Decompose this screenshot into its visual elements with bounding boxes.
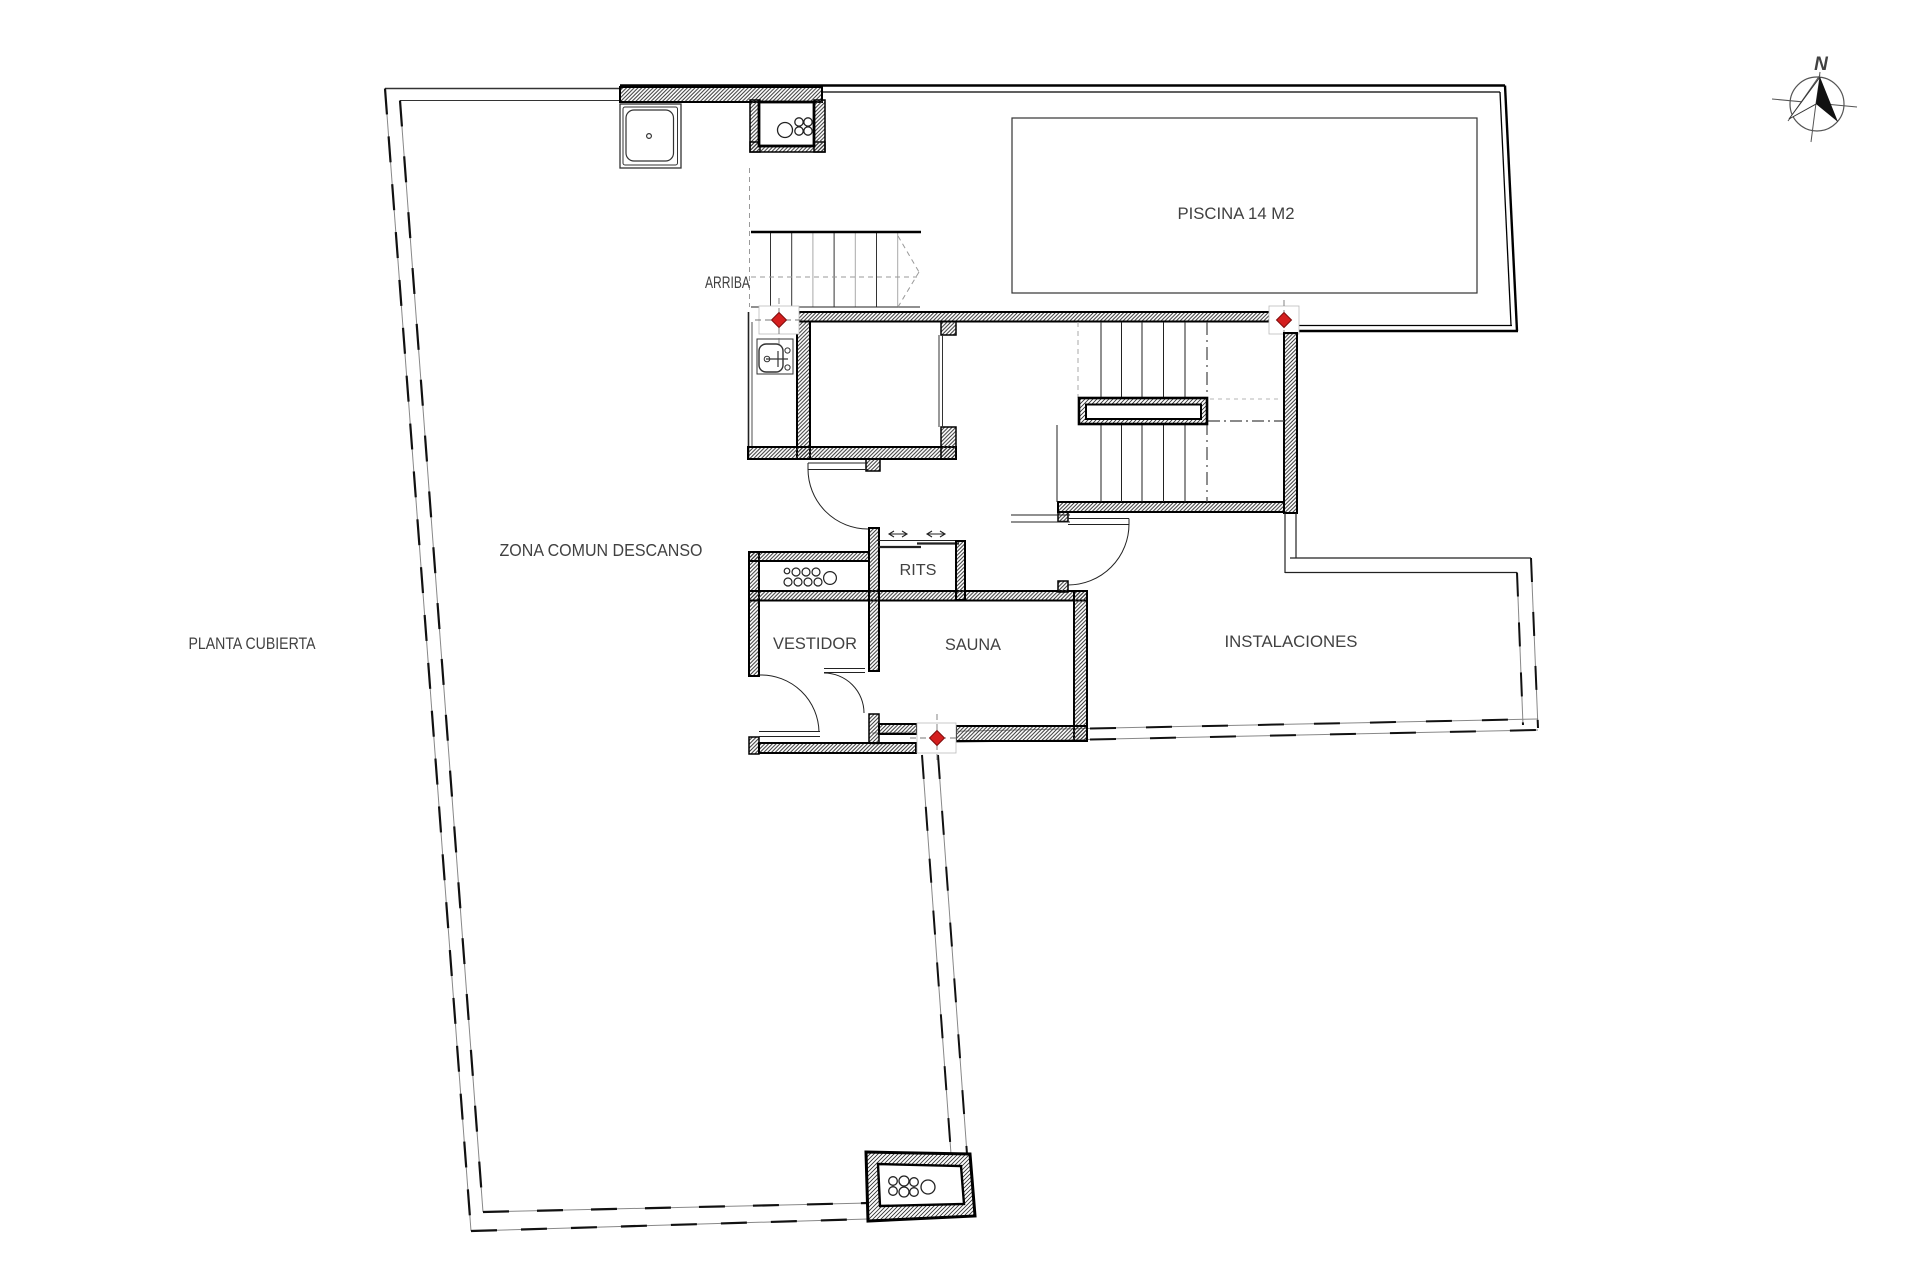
svg-text:N: N (1814, 54, 1829, 75)
svg-text:INSTALACIONES: INSTALACIONES (1225, 632, 1358, 651)
svg-text:SAUNA: SAUNA (945, 635, 1002, 654)
svg-text:VESTIDOR: VESTIDOR (773, 634, 857, 653)
svg-text:PLANTA CUBIERTA: PLANTA CUBIERTA (189, 634, 317, 653)
svg-text:RITS: RITS (900, 562, 937, 579)
svg-text:PISCINA 14 M2: PISCINA 14 M2 (1178, 204, 1295, 223)
svg-text:ZONA COMUN DESCANSO: ZONA COMUN DESCANSO (500, 540, 703, 560)
svg-text:ARRIBA: ARRIBA (705, 273, 750, 292)
